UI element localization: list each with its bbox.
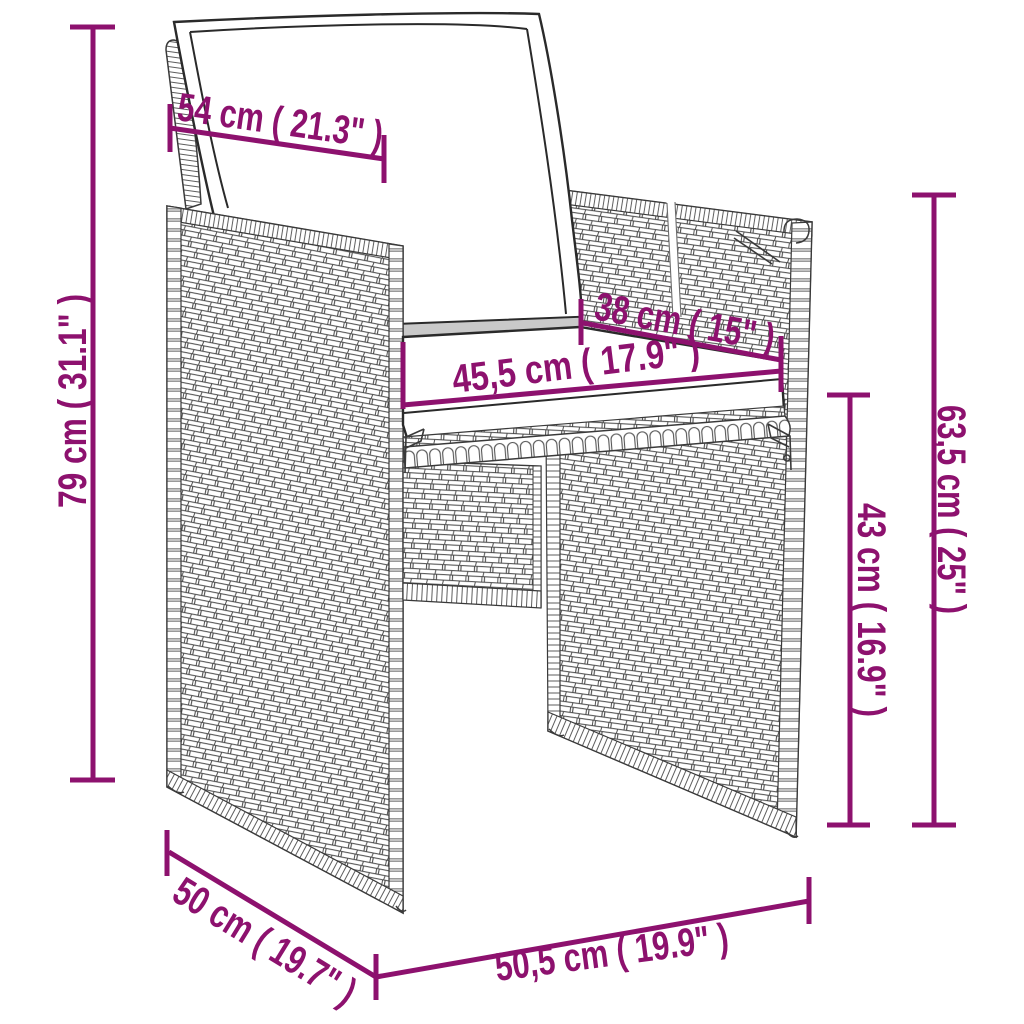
svg-text:43 cm ( 16.9" ): 43 cm ( 16.9" ) (849, 503, 893, 717)
svg-text:63,5 cm ( 25" ): 63,5 cm ( 25" ) (929, 405, 973, 614)
svg-text:79 cm ( 31.1" ): 79 cm ( 31.1" ) (51, 294, 95, 508)
